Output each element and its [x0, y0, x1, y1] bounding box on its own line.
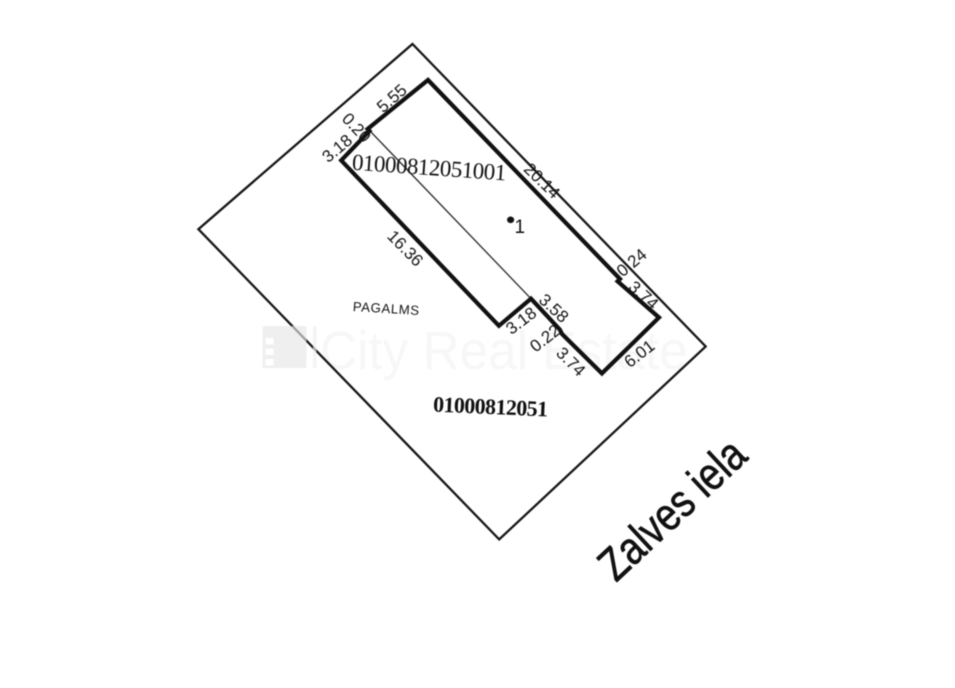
svg-text:01000812051: 01000812051 — [433, 392, 548, 422]
svg-text:1: 1 — [515, 217, 526, 238]
